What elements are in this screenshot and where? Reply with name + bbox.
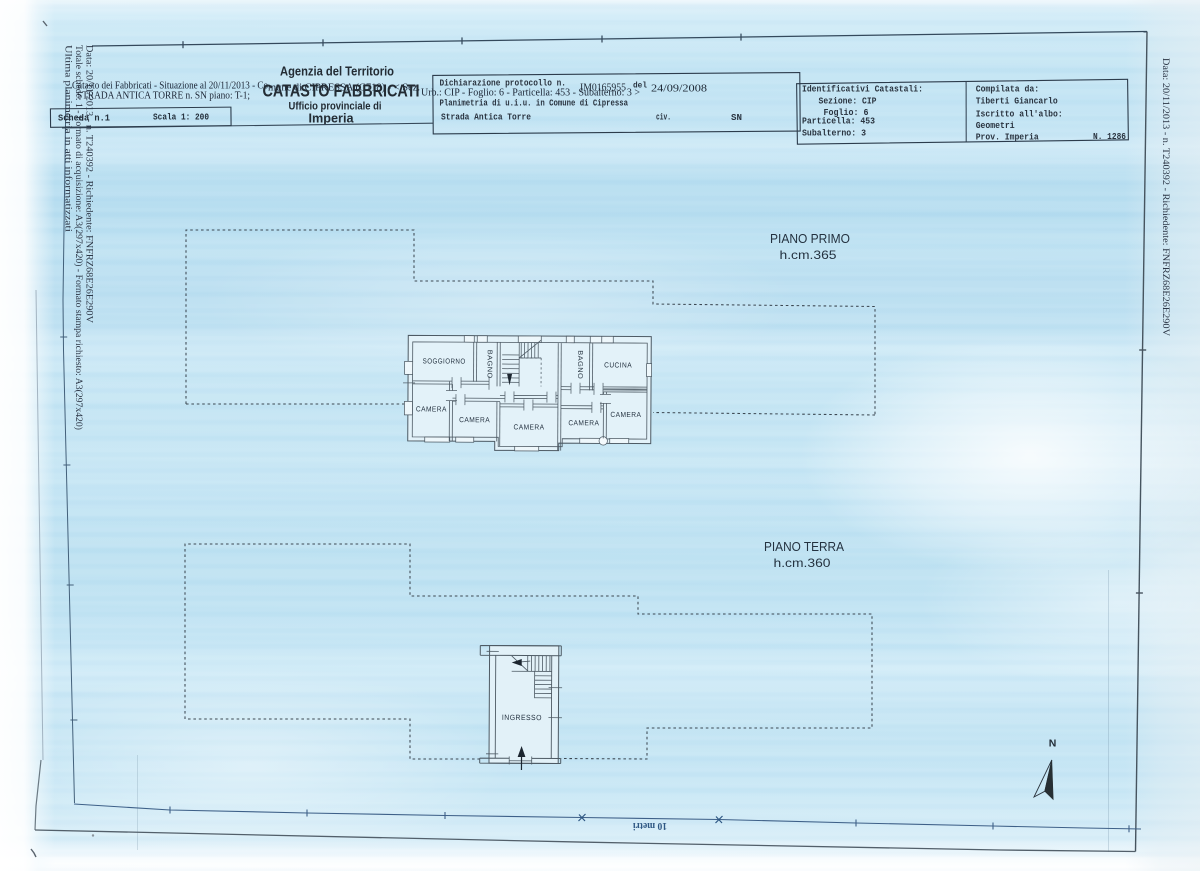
svg-text:Data: 20/11/2013 - n. T240392: Data: 20/11/2013 - n. T240392 - Richiede… bbox=[1160, 58, 1170, 336]
svg-text:SOGGIORNO: SOGGIORNO bbox=[423, 356, 466, 365]
svg-text:CAMERA: CAMERA bbox=[610, 410, 641, 419]
svg-text:Compilata da:: Compilata da: bbox=[976, 85, 1039, 95]
svg-text:CAMERA: CAMERA bbox=[459, 415, 490, 424]
svg-text:CAMERA: CAMERA bbox=[513, 422, 544, 431]
svg-text:SN: SN bbox=[731, 113, 742, 123]
svg-text:STRADA ANTICA TORRE n. SN pian: STRADA ANTICA TORRE n. SN piano: T-1; bbox=[77, 91, 250, 102]
svg-text:Geometri: Geometri bbox=[976, 121, 1016, 131]
svg-text:Scheda n.1: Scheda n.1 bbox=[58, 113, 110, 124]
svg-text:Scala 1: 200: Scala 1: 200 bbox=[153, 112, 209, 123]
svg-text:Tiberti Giancarlo: Tiberti Giancarlo bbox=[976, 97, 1058, 107]
svg-text:h.cm.365: h.cm.365 bbox=[780, 248, 837, 262]
svg-text:Prov. Imperia: Prov. Imperia bbox=[976, 133, 1040, 143]
svg-text:N: N bbox=[1049, 738, 1057, 750]
svg-text:h.cm.360: h.cm.360 bbox=[774, 556, 831, 570]
svg-text:PIANO TERRA: PIANO TERRA bbox=[764, 540, 845, 554]
svg-text:Imperia: Imperia bbox=[309, 111, 355, 126]
svg-text:civ.: civ. bbox=[656, 113, 671, 123]
svg-text:del: del bbox=[633, 82, 647, 91]
svg-text:Ultima planimetria in atti inf: Ultima planimetria in atti informatizzat… bbox=[64, 45, 74, 233]
svg-text:Dichiarazione protocollo n.: Dichiarazione protocollo n. bbox=[440, 79, 567, 89]
svg-text:CAMERA: CAMERA bbox=[568, 418, 599, 427]
svg-text:INGRESSO: INGRESSO bbox=[502, 713, 542, 722]
svg-text:N. 1286: N. 1286 bbox=[1093, 132, 1126, 142]
svg-text:BAGNO: BAGNO bbox=[576, 350, 583, 379]
svg-text:Planimetria di u.i.u. in Comun: Planimetria di u.i.u. in Comune di Cipre… bbox=[440, 98, 629, 108]
svg-text:Iscritto all'albo:: Iscritto all'albo: bbox=[976, 110, 1063, 120]
svg-text:Agenzia del Territorio: Agenzia del Territorio bbox=[280, 65, 394, 79]
svg-text:Totale schede: 1 - Formato di: Totale schede: 1 - Formato di acquisizio… bbox=[74, 45, 84, 430]
svg-text:10 metri: 10 metri bbox=[633, 820, 667, 832]
svg-text:PIANO PRIMO: PIANO PRIMO bbox=[770, 232, 850, 246]
svg-text:BAGNO: BAGNO bbox=[486, 350, 493, 379]
svg-text:Particella: 453: Particella: 453 bbox=[802, 117, 875, 127]
svg-text:CUCINA: CUCINA bbox=[604, 360, 632, 369]
svg-text:CATASTO FABBRICATI: CATASTO FABBRICATI bbox=[263, 80, 420, 100]
svg-text:IM0165955: IM0165955 bbox=[580, 83, 626, 94]
svg-text:Strada Antica Torre: Strada Antica Torre bbox=[441, 113, 531, 123]
svg-text:24/09/2008: 24/09/2008 bbox=[651, 84, 707, 95]
svg-text:Subalterno: 3: Subalterno: 3 bbox=[802, 129, 866, 139]
svg-text:Identificativi Catastali:: Identificativi Catastali: bbox=[802, 85, 923, 95]
svg-text:CAMERA: CAMERA bbox=[416, 404, 447, 413]
svg-text:Sezione: CIP: Sezione: CIP bbox=[819, 97, 878, 107]
